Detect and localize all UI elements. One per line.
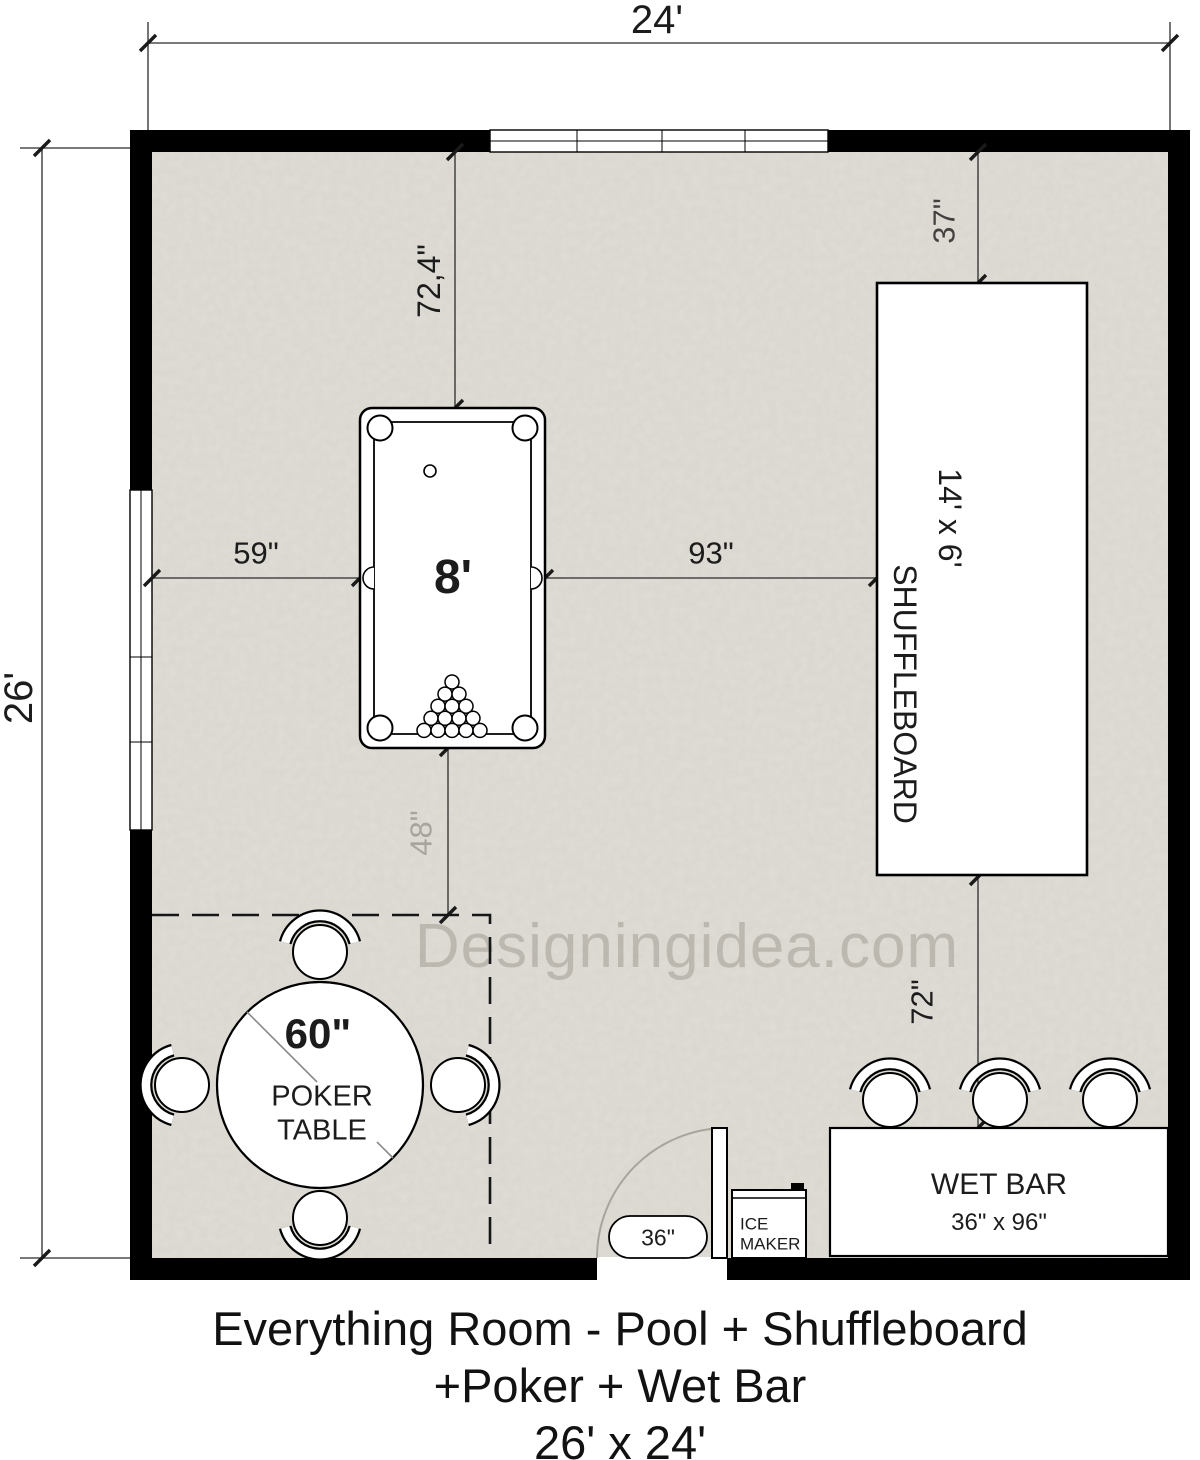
plan-title-line2: +Poker + Wet Bar	[40, 1357, 1200, 1414]
floor-plan-drawing: Designingidea.com	[0, 0, 1200, 1460]
pool-bottom-dimension: 48"	[406, 810, 437, 856]
pool-table-size-label: 8'	[434, 554, 472, 602]
poker-table-name-line1: POKER	[271, 1083, 373, 1112]
shuffleboard-name-label: SHUFFLEBOARD	[889, 564, 921, 824]
poker-table-name-line2: TABLE	[277, 1117, 367, 1146]
wall-right	[1168, 130, 1190, 1280]
cue-ball	[424, 465, 436, 477]
shuffleboard-top-dimension: 37"	[929, 198, 960, 244]
plan-title-line1: Everything Room - Pool + Shuffleboard	[40, 1300, 1200, 1357]
pool-top-dimension: 72,4"	[413, 244, 445, 318]
door-opening	[597, 1257, 727, 1281]
floor-plan-page: Designingidea.com	[0, 0, 1200, 1460]
ice-maker-label-line1: ICE	[740, 1216, 768, 1233]
wet-bar-name-label: WET BAR	[931, 1170, 1067, 1200]
ice-maker-handle	[791, 1183, 804, 1191]
plan-title: Everything Room - Pool + Shuffleboard +P…	[40, 1300, 1200, 1460]
plan-title-line3: 26' x 24'	[40, 1414, 1200, 1460]
watermark-text: Designingidea.com	[415, 912, 959, 981]
room-width-dimension: 24'	[631, 0, 683, 40]
window-top	[490, 130, 828, 152]
ice-maker-label-line2: MAKER	[740, 1236, 800, 1253]
bar-stools	[855, 1064, 1145, 1127]
pool-left-dimension: 59"	[233, 538, 279, 569]
poker-table-diameter-label: 60"	[285, 1013, 352, 1055]
pool-right-dimension: 93"	[688, 538, 734, 569]
room-height-dimension: 26'	[0, 672, 39, 724]
window-left	[130, 490, 152, 830]
wet-bar-size-label: 36" x 96"	[951, 1211, 1047, 1235]
shuffleboard-size-label: 14' x 6'	[934, 468, 966, 567]
shuffleboard-bottom-dimension: 72"	[907, 979, 938, 1025]
door-width-label: 36"	[641, 1227, 675, 1250]
door-leaf	[712, 1128, 727, 1258]
